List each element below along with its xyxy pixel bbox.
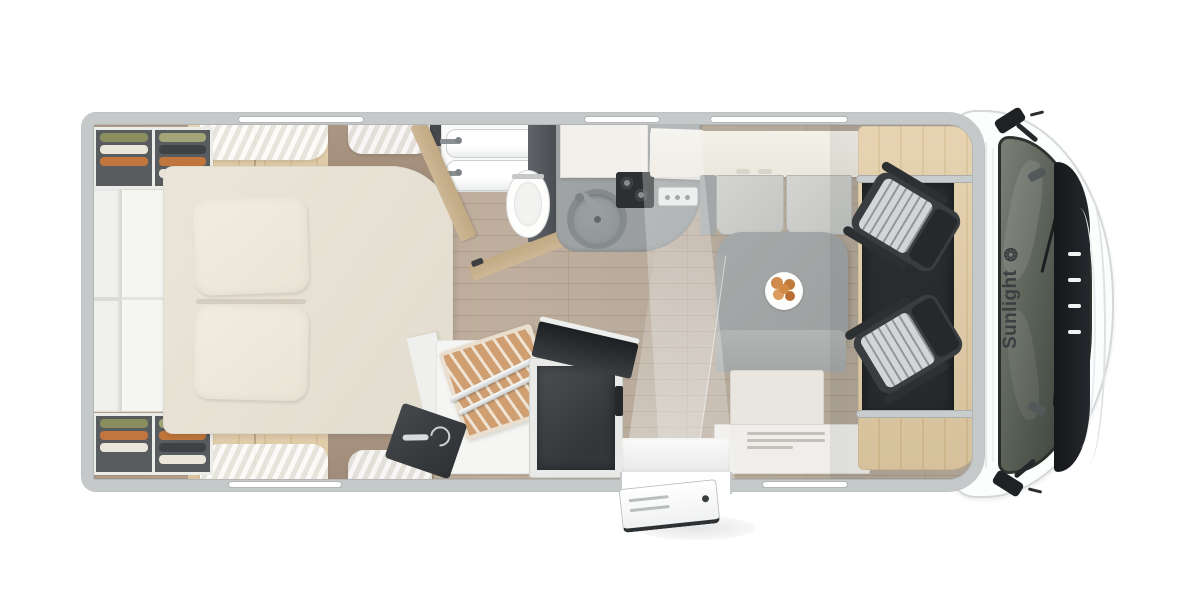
door-tread xyxy=(629,495,669,502)
door-tread xyxy=(630,505,670,512)
door-handle xyxy=(702,495,710,503)
vehicle-wall xyxy=(82,113,984,491)
window xyxy=(238,116,364,123)
mirror-tip xyxy=(1030,110,1044,116)
window xyxy=(710,116,848,123)
brand-text: Sunlight xyxy=(1000,270,1022,349)
window xyxy=(228,481,342,488)
motorhome-floorplan: Sunlight ❂ xyxy=(0,0,1200,600)
cab-roof-seam xyxy=(992,148,994,462)
window xyxy=(584,116,660,123)
window xyxy=(762,481,848,488)
entry-step xyxy=(622,438,730,472)
mirror-tip xyxy=(1028,487,1042,493)
cab-roof-seam xyxy=(985,142,987,468)
sun-icon: ❂ xyxy=(1003,247,1020,262)
brand-logo: Sunlight ❂ xyxy=(998,223,1024,373)
